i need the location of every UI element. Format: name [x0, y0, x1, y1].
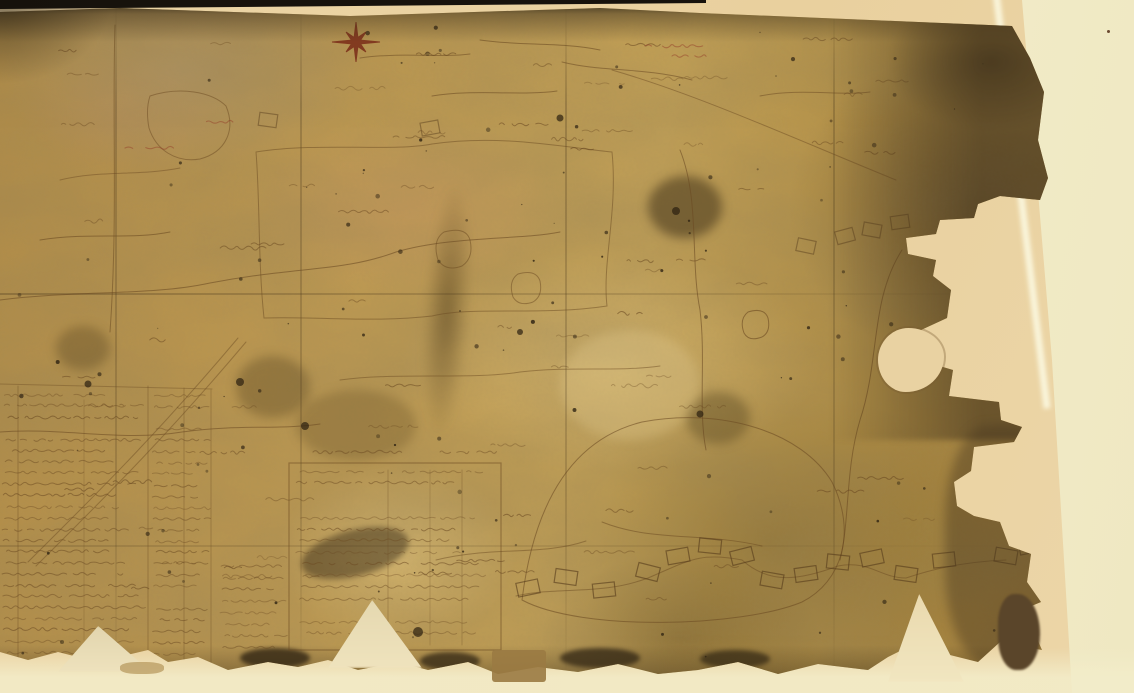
photo-edge-shadow [0, 0, 706, 9]
detached-fragment [120, 662, 164, 674]
map-sheet [0, 0, 1134, 693]
detached-fragment [998, 594, 1040, 670]
dust-speck [1107, 30, 1110, 33]
detached-fragment [492, 650, 546, 682]
photograph-of-antique-map [0, 0, 1134, 693]
